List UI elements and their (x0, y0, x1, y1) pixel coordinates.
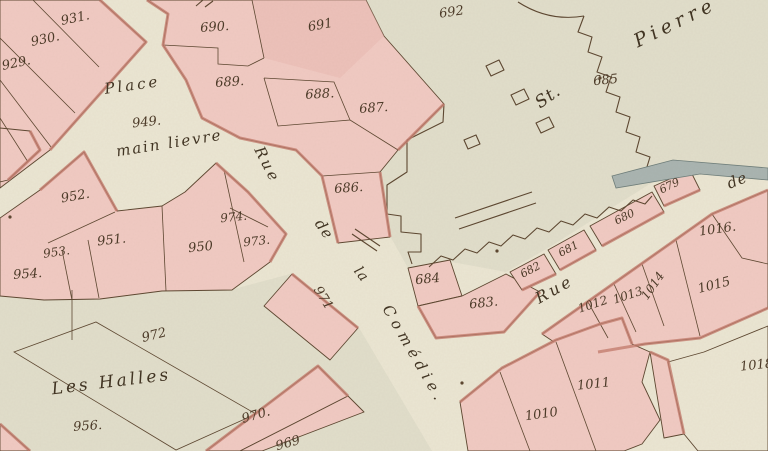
parcel-number-685: 685 (593, 72, 619, 90)
parcel-number-687: 687. (359, 100, 389, 117)
parcel-number-686: 686. (334, 180, 364, 197)
parcel-number-956: 956. (73, 418, 103, 435)
parcel-number-688: 688. (305, 86, 335, 102)
parcel-number-690: 690. (200, 19, 230, 36)
parcel-number-951: 951. (96, 232, 126, 250)
parcel-number-689: 689. (215, 74, 245, 91)
map-canvas: Placemain lievreRuedelaComédie.St.Pierre… (0, 0, 768, 451)
parcel-number-1018: 1018 (739, 356, 768, 374)
parcel-number-954: 954. (13, 266, 43, 283)
parcel-number-683: 683. (468, 295, 498, 313)
cadastral-map-sheet: Placemain lievreRuedelaComédie.St.Pierre… (0, 0, 768, 451)
parcel-number-949: 949. (131, 114, 161, 132)
parcel-number-974: 974. (220, 209, 248, 226)
parcel-number-950: 950 (188, 239, 214, 257)
parcel-number-973: 973. (243, 233, 271, 250)
parcel-number-684: 684 (415, 271, 441, 289)
